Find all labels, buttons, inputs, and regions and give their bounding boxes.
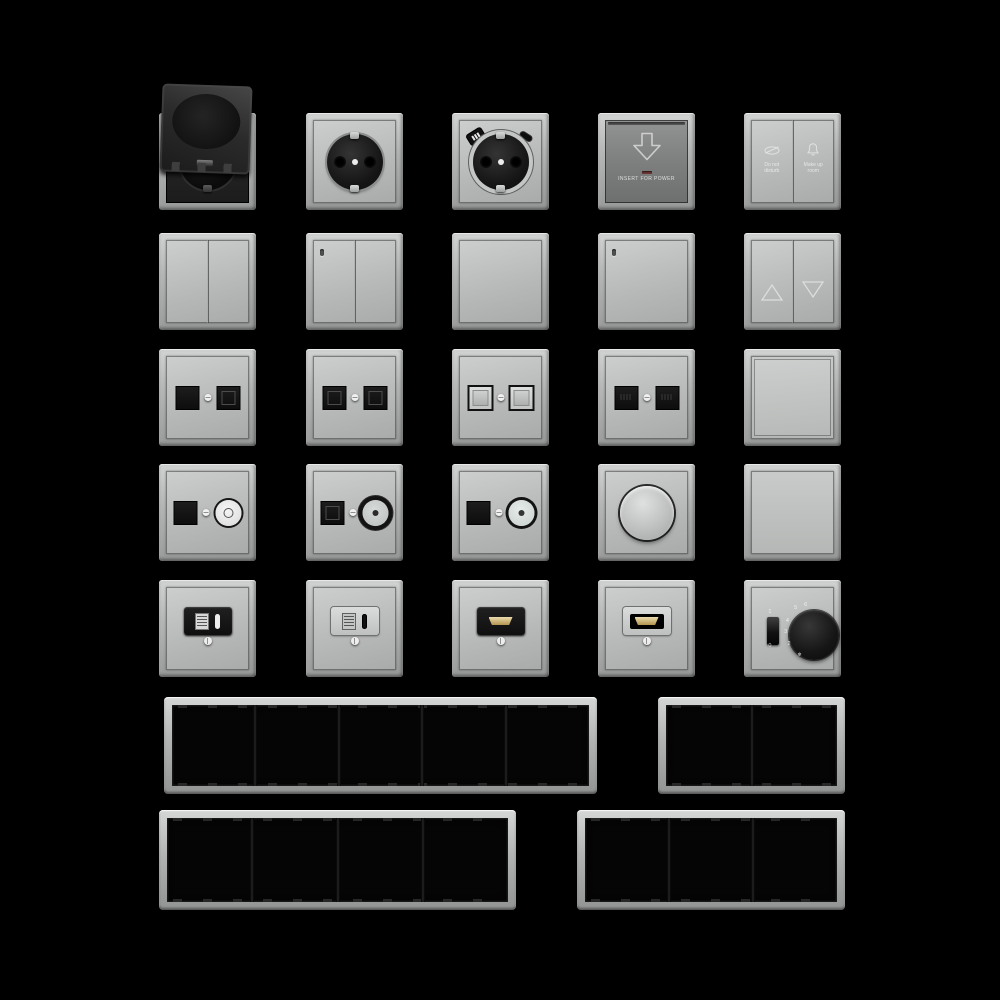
indicator-led [320, 249, 324, 256]
do-not-disturb-icon [763, 143, 781, 161]
center-screw-icon [351, 637, 359, 645]
usb-charger-insert [331, 607, 379, 635]
blank-plate [751, 471, 834, 554]
hdmi-socket-black [452, 580, 549, 677]
rocker-plate [605, 240, 688, 323]
schuko-socket-usb [452, 113, 549, 210]
service-switch-plate: Do notdisturb Make uproom [751, 120, 834, 203]
mounting-tabs-icon [178, 705, 583, 708]
rocker-divider [354, 240, 356, 323]
double-rocker-switch-indicator [306, 233, 403, 330]
center-screw-icon [643, 394, 650, 401]
rocker-divider [207, 240, 209, 323]
coax-connector-icon [508, 500, 534, 526]
earth-clip-icon [350, 185, 359, 192]
hinged-lid [159, 83, 252, 174]
socket-plate [313, 471, 396, 554]
rocker-divider [792, 120, 794, 203]
frame-opening [172, 705, 589, 786]
dual-data-socket-black [159, 349, 256, 446]
frame-opening [585, 818, 837, 902]
usb-charger-grey [306, 580, 403, 677]
switch-on-label: 1 [768, 609, 771, 615]
arrow-down-icon [801, 280, 825, 304]
make-up-room-bell-icon [806, 142, 820, 161]
earth-clip-icon [350, 132, 359, 139]
rocker-face [754, 359, 831, 436]
frame-divider [250, 818, 254, 902]
socket-plate [459, 356, 542, 439]
earth-clip-icon [496, 132, 505, 139]
hdmi-insert [623, 607, 671, 635]
usb-charger-insert [184, 607, 232, 635]
socket-plate [313, 356, 396, 439]
socket-hole-icon [510, 156, 522, 168]
socket-plate [166, 587, 249, 670]
usb-charger-black [159, 580, 256, 677]
dual-data-socket-black-framed [306, 349, 403, 446]
dual-data-socket-pinned [598, 349, 695, 446]
rocker-plate [751, 356, 834, 439]
center-screw-icon [352, 159, 358, 165]
rotary-dimmer [598, 464, 695, 561]
center-screw-icon [349, 509, 356, 516]
data-port-icon [176, 387, 198, 409]
center-screw-icon [204, 394, 211, 401]
socket-hole-icon [364, 156, 376, 168]
shutter-up-rocker [751, 240, 793, 323]
socket-plate [605, 587, 688, 670]
usb-c-port-icon [520, 131, 533, 142]
shutter-down-rocker [793, 240, 835, 323]
do-not-disturb-rocker: Do notdisturb [751, 120, 793, 203]
frame-divider [337, 705, 341, 786]
frame-5-gang [164, 697, 597, 794]
schuko-socket-hinged-lid [159, 113, 256, 210]
frame-divider [336, 818, 340, 902]
schuko-outlet-icon [473, 134, 529, 190]
frost-icon: ❄ [797, 652, 801, 658]
frame-divider [504, 705, 508, 786]
rocker-plate [459, 240, 542, 323]
frame-divider [420, 705, 424, 786]
socket-plate [166, 471, 249, 554]
product-sheet: INSERT FOR POWER Do notdisturb [0, 0, 1000, 1000]
center-screw-icon [643, 637, 651, 645]
frame-divider [751, 818, 755, 902]
usb-c-port-icon [215, 614, 220, 629]
data-port-icon [364, 387, 386, 409]
mounting-tabs-icon [591, 899, 831, 902]
blank-cover-plate [744, 464, 841, 561]
hdmi-connector-icon [489, 617, 513, 625]
socket-plate [605, 356, 688, 439]
data-port-icon [615, 387, 637, 409]
usb-a-port-icon [195, 613, 209, 630]
do-not-disturb-label: Do notdisturb [751, 162, 793, 174]
double-rocker-switch [159, 233, 256, 330]
scale-tick: 6 [804, 602, 807, 608]
data-coax-socket-white [159, 464, 256, 561]
shuttered-port-icon [510, 387, 532, 409]
socket-plate [313, 120, 396, 203]
socket-plate [313, 587, 396, 670]
card-slot-icon [608, 122, 685, 125]
hdmi-insert [477, 607, 525, 635]
data-port-icon [656, 387, 678, 409]
data-port-icon [174, 502, 196, 524]
usb-a-port-icon [342, 613, 356, 630]
single-rocker-switch-indicator [598, 233, 695, 330]
frame-divider [421, 818, 425, 902]
frame-4-gang [159, 810, 516, 910]
single-rocker-flat [744, 349, 841, 446]
mounting-tabs-icon [591, 818, 831, 821]
make-up-room-label: Make uproom [793, 162, 835, 174]
coax-connector-icon [215, 500, 241, 526]
socket-hole-icon [334, 156, 346, 168]
data-port-icon [467, 502, 489, 524]
data-port-icon [217, 387, 239, 409]
rocker-plate [166, 240, 249, 323]
thermostat-on-off-switch [767, 617, 779, 645]
scale-tick: 5 [794, 605, 797, 611]
frame-divider [253, 705, 257, 786]
data-coax-socket-ring-light [452, 464, 549, 561]
usb-c-port-icon [362, 614, 367, 629]
shutter-rocker-switch [744, 233, 841, 330]
rocker-divider [792, 240, 794, 323]
status-led [642, 171, 652, 174]
socket-plate [166, 356, 249, 439]
data-port-icon [323, 387, 345, 409]
scale-tick: 3 [784, 629, 787, 635]
frame-opening [666, 705, 837, 786]
room-thermostat: 1 0 2 3 4 5 6 ❄ [744, 580, 841, 677]
socket-plate [459, 587, 542, 670]
hdmi-recess [630, 614, 664, 629]
dimmer-knob [620, 486, 674, 540]
rocker-plate [751, 240, 834, 323]
earth-clip-icon [496, 185, 505, 192]
dimmer-plate [605, 471, 688, 554]
center-screw-icon [202, 509, 209, 516]
shuttered-port-icon [469, 387, 491, 409]
socket-plate [459, 120, 542, 203]
single-rocker-switch [452, 233, 549, 330]
thermostat-plate: 1 0 2 3 4 5 6 ❄ [751, 587, 834, 670]
switch-off-label: 0 [768, 643, 771, 649]
center-screw-icon [204, 637, 212, 645]
keycard-power-switch: INSERT FOR POWER [598, 113, 695, 210]
socket-plate [459, 471, 542, 554]
lid-hinge-icon [172, 162, 238, 173]
scale-tick: 2 [788, 641, 791, 647]
keycard-label: INSERT FOR POWER [605, 176, 688, 182]
center-screw-icon [351, 394, 358, 401]
make-up-room-rocker: Make uproom [793, 120, 835, 203]
hdmi-connector-icon [635, 617, 659, 625]
frame-3-gang [577, 810, 845, 910]
scale-tick: 4 [786, 618, 789, 624]
rocker-plate [313, 240, 396, 323]
center-screw-icon [495, 509, 502, 516]
center-screw-icon [497, 394, 504, 401]
hdmi-socket-grey [598, 580, 695, 677]
lid-recess-icon [171, 93, 241, 150]
data-port-icon [321, 502, 343, 524]
dual-data-socket-shuttered [452, 349, 549, 446]
keycard-plate: INSERT FOR POWER [605, 120, 688, 203]
earth-clip-icon [203, 185, 212, 192]
coax-connector-icon [362, 500, 388, 526]
schuko-outlet-icon [327, 134, 383, 190]
indicator-led [612, 249, 616, 256]
socket-hole-icon [480, 156, 492, 168]
hotel-service-switch: Do notdisturb Make uproom [744, 113, 841, 210]
center-screw-icon [497, 637, 505, 645]
arrow-up-icon [760, 283, 784, 307]
data-coax-socket-ring [306, 464, 403, 561]
frame-divider [750, 705, 754, 786]
frame-2-gang [658, 697, 845, 794]
frame-opening [167, 818, 508, 902]
schuko-socket [306, 113, 403, 210]
mounting-tabs-icon [178, 783, 583, 786]
frame-divider [667, 818, 671, 902]
center-screw-icon [498, 159, 504, 165]
insert-card-arrow-icon [629, 131, 665, 168]
